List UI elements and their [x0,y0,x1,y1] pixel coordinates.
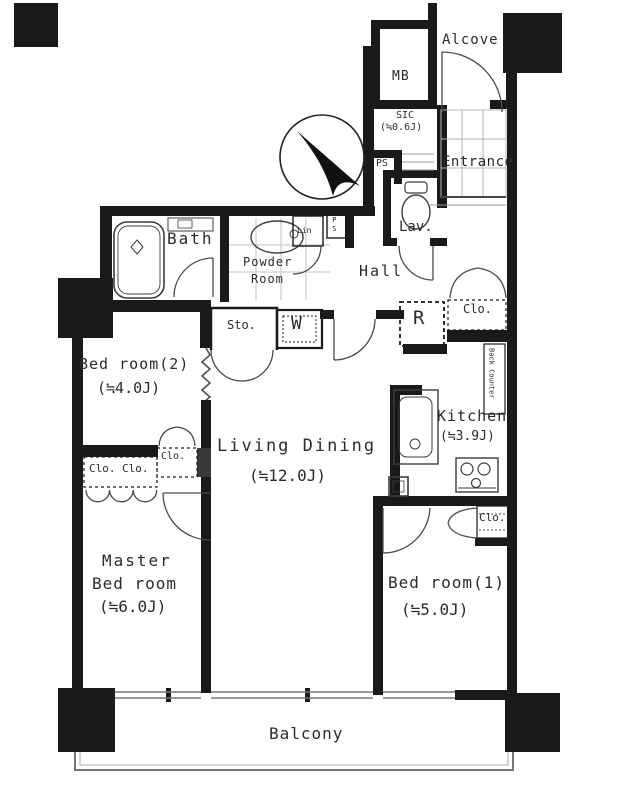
powder-room-label-line1: Powder [243,256,292,269]
washer-label: W [291,315,302,334]
storage-label: Sto. [227,319,256,332]
shoe-closet-size: (≒0.6J) [380,123,422,134]
floorplan: Alcove MB SIC (≒0.6J) PS Entrance Lav. H… [0,0,624,795]
bedroom1-size: (≒5.0J) [401,602,468,619]
shoe-closet-label: SIC [396,111,414,122]
bedroom2-size: (≒4.0J) [97,381,160,397]
column-bottom-left [58,688,115,752]
column-top-right [503,13,562,73]
master-bedroom-label-line1: Master [102,553,172,570]
kitchen-size: (≒3.9J) [440,430,495,444]
balcony-outline [75,752,513,770]
column-bottom-right [505,693,560,752]
living-dining-label: Living Dining [217,438,376,456]
bedroom2-closet-doors [159,427,177,446]
linen-label: Lin [297,227,311,235]
master-closet-right-label: Clo. [122,463,149,475]
kitchen-label: Kitchen [437,409,507,425]
meter-box-label: MB [392,70,410,84]
powder-room-label-line2: Room [251,273,284,286]
back-counter-label: Back Counter [487,348,494,399]
bathtub-icon [114,222,164,298]
balcony-label: Balcony [269,726,343,743]
storage-boxes [84,214,513,538]
living-dining-size: (≒12.0J) [249,468,326,485]
pipe-space-entrance-label: PS [376,159,388,170]
linen-door [293,246,321,274]
floorplan-drawing [0,0,624,795]
master-bedroom-label-line2: Bed room [92,576,177,593]
pipe-space-hall-label: PS [330,216,337,234]
bedroom1-closet-label: Clo. [479,512,506,524]
duct-box [197,448,211,477]
hall-label: Hall [359,264,403,280]
bath-label: Bath [167,231,214,248]
kitchen-sink-icon [394,390,438,464]
shoe-shelf-lines [402,154,434,170]
bedroom2-label: Bed room(2) [79,357,189,373]
column-top-left [14,3,58,47]
alcove-label: Alcove [442,33,499,48]
stove-icon [456,458,498,492]
structural-columns [14,3,562,752]
hall-closet-doors [450,268,478,298]
sink-icon [251,221,303,253]
column-mid-left [58,278,113,338]
master-bedroom-size: (≒6.0J) [99,599,166,616]
bedroom1-label: Bed room(1) [388,575,505,592]
bedroom2-closet-label: Clo. [161,452,185,463]
bedroom1-closet-doors [448,508,477,523]
lavatory-label: Lav. [399,220,433,235]
hall-closet-label: Clo. [463,303,492,316]
refrigerator-label: R [413,309,424,329]
master-closet-left-label: Clo. [89,463,116,475]
storage-doors [211,350,242,381]
entrance-label: Entrance [442,155,513,170]
master-closet-doors [86,490,157,502]
north-arrow-icon [280,115,364,199]
bedroom2-accordion-door [202,348,210,400]
